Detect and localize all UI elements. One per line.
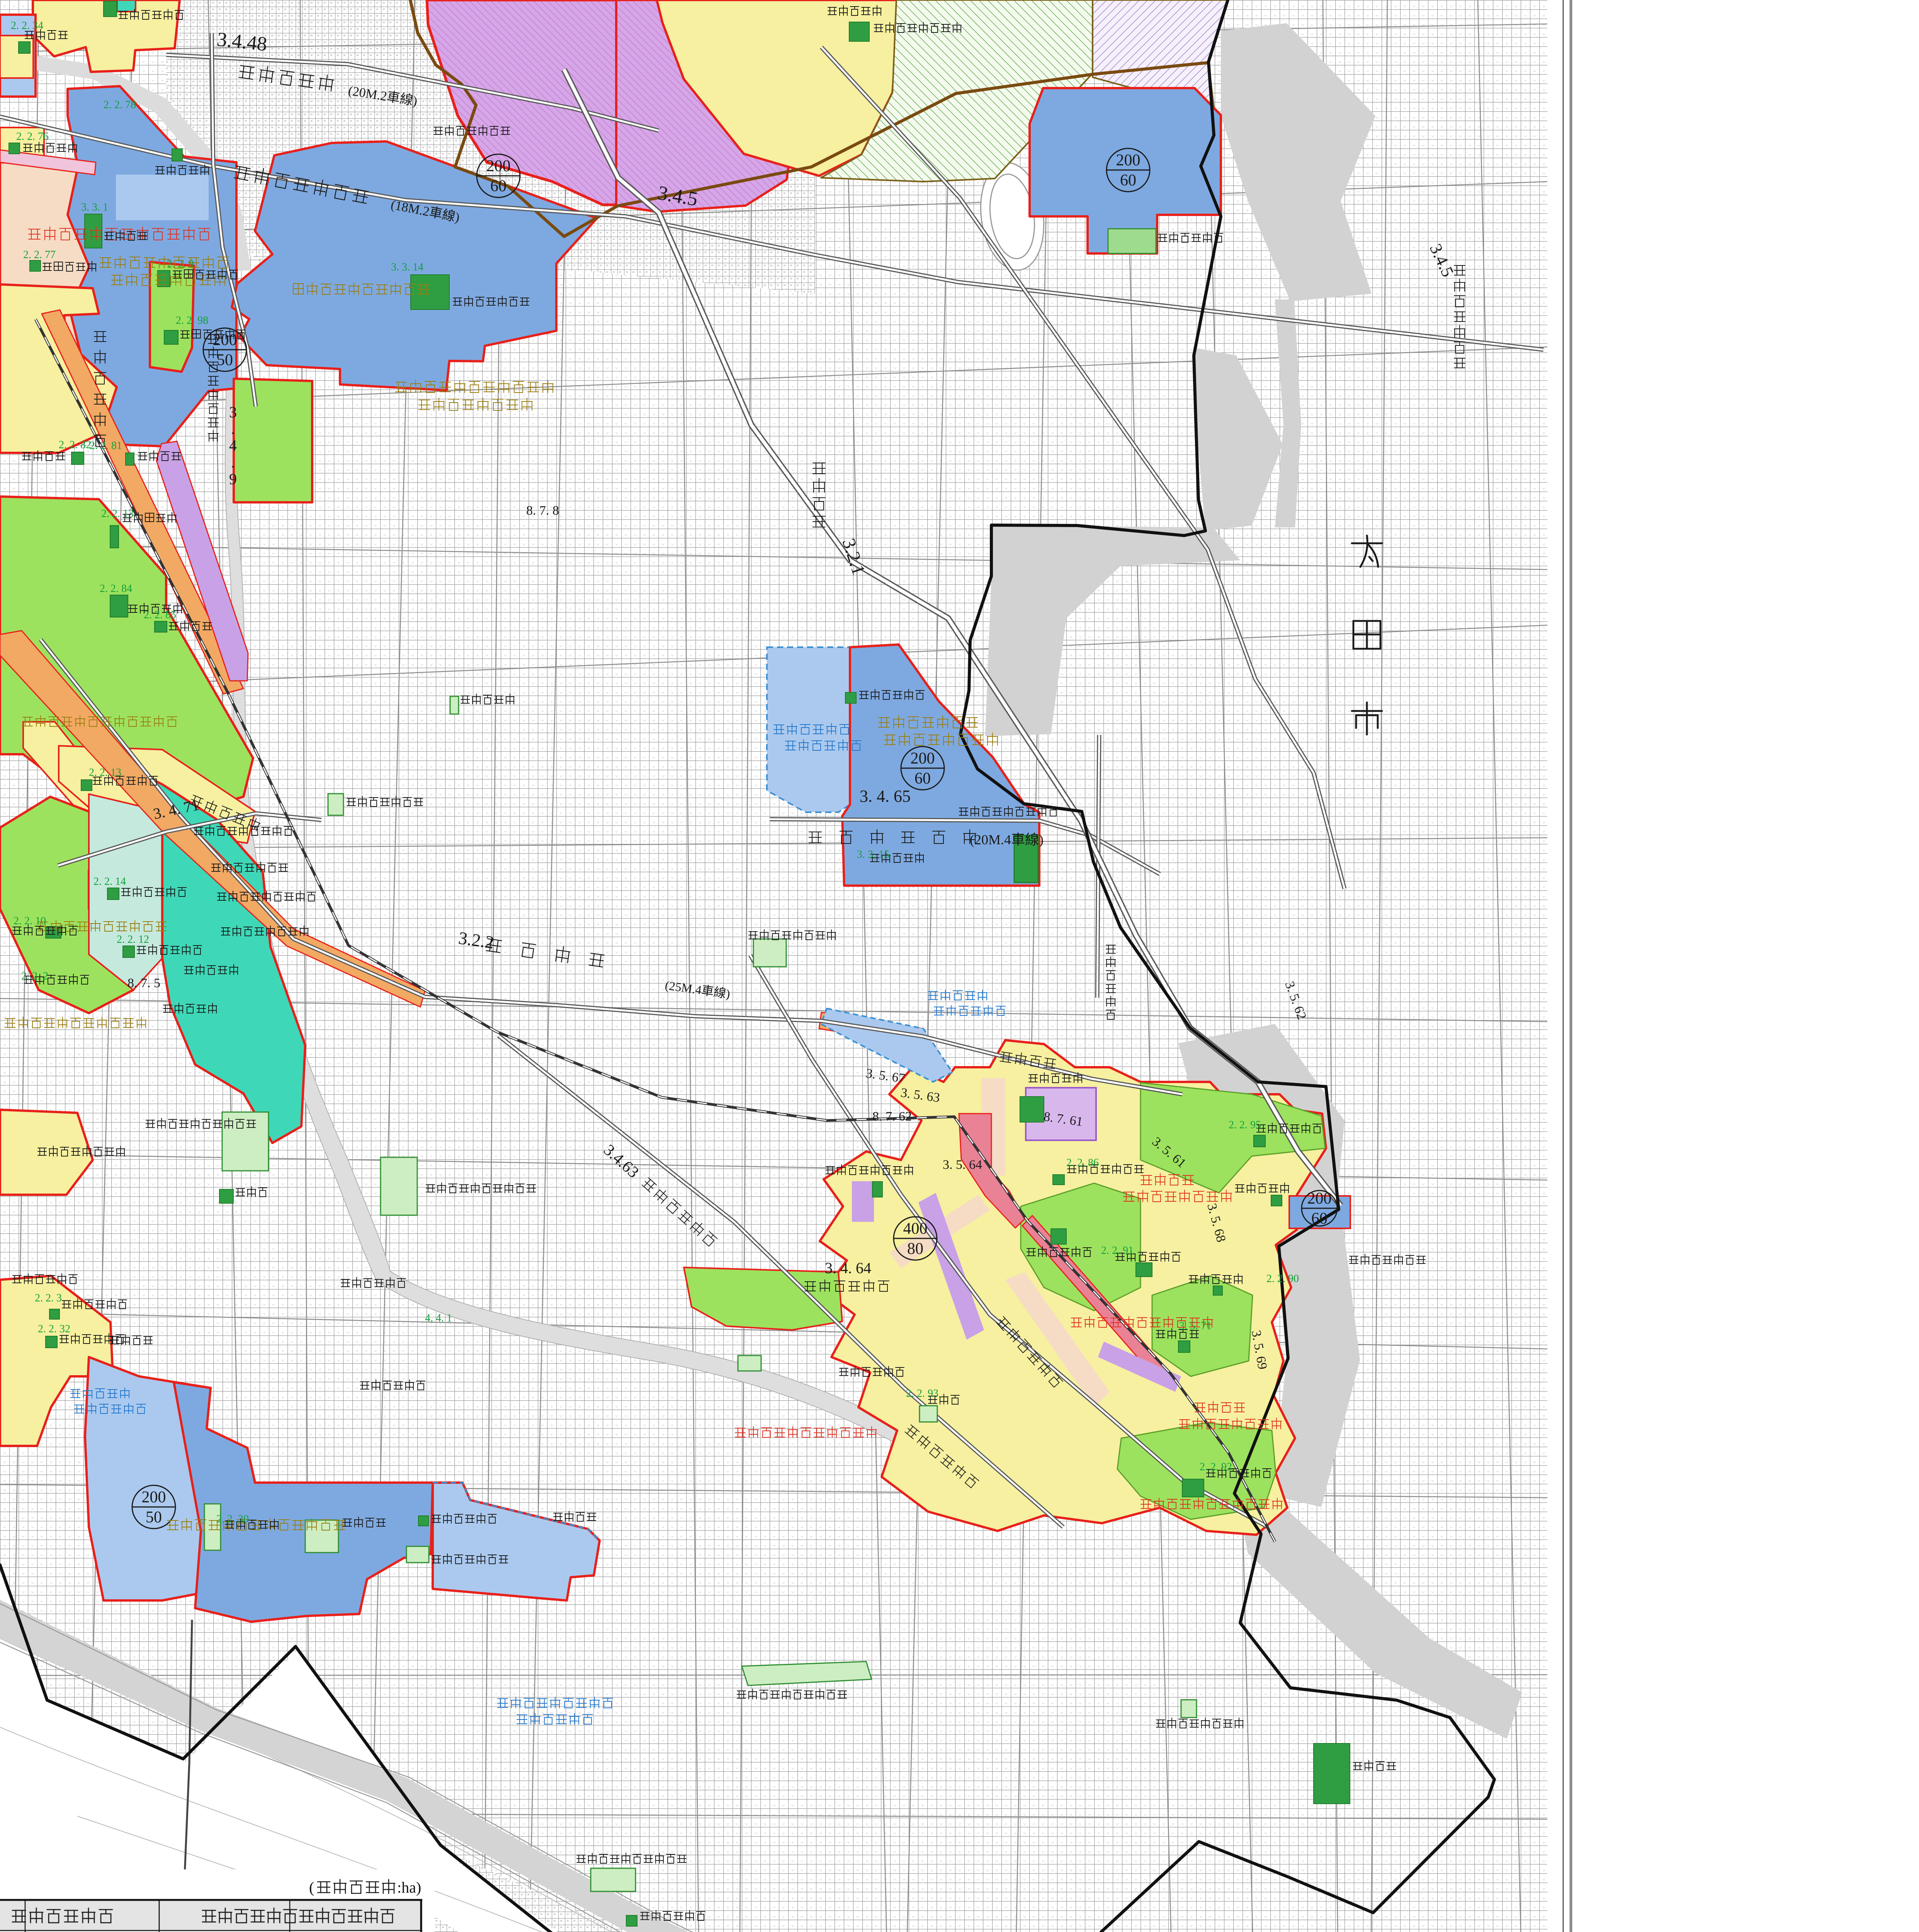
svg-text:2. 2. 2: 2. 2. 2: [21, 970, 48, 982]
svg-text:200: 200: [486, 157, 511, 175]
svg-text:8. 7. 5: 8. 7. 5: [127, 976, 160, 990]
svg-text:2. 2. 32: 2. 2. 32: [38, 1323, 70, 1335]
svg-text:200: 200: [142, 1488, 166, 1506]
svg-text::ha): :ha): [397, 1879, 421, 1896]
svg-text:2. 2. 92: 2. 2. 92: [1200, 1461, 1232, 1473]
svg-text:200: 200: [1116, 151, 1141, 169]
svg-text:8. 7. 62: 8. 7. 62: [872, 1109, 912, 1124]
svg-text:2. 2. 34: 2. 2. 34: [11, 20, 43, 32]
svg-text:2. 2. 98: 2. 2. 98: [176, 315, 208, 327]
svg-text:2. 2. 93: 2. 2. 93: [906, 1388, 938, 1400]
svg-text:200: 200: [1307, 1190, 1332, 1207]
svg-text:3. 3. 15: 3. 3. 15: [857, 849, 889, 861]
svg-text:60: 60: [914, 770, 931, 787]
svg-text:60: 60: [490, 177, 507, 195]
svg-text:2. 2. 13: 2. 2. 13: [101, 508, 134, 520]
svg-text:2. 2. 12: 2. 2. 12: [117, 934, 149, 946]
svg-text:2. 2. 86: 2. 2. 86: [1066, 1157, 1099, 1169]
svg-text:60: 60: [1311, 1210, 1327, 1228]
svg-text:2. 2. 14: 2. 2. 14: [93, 876, 126, 888]
svg-text:200: 200: [911, 750, 935, 767]
svg-text:3. 3. 14: 3. 3. 14: [391, 261, 423, 273]
svg-text:400: 400: [903, 1220, 928, 1238]
svg-text:80: 80: [907, 1240, 923, 1258]
svg-text:50: 50: [146, 1509, 162, 1526]
svg-text:2. 2. 13: 2. 2. 13: [89, 767, 121, 779]
svg-text:50: 50: [217, 351, 233, 369]
svg-text:(20M.4車線): (20M.4車線): [970, 832, 1044, 847]
svg-text:3. 3. 1: 3. 3. 1: [81, 201, 108, 213]
svg-text:2. 2. 85: 2. 2. 85: [144, 609, 176, 621]
svg-text:(: (: [309, 1879, 314, 1896]
svg-text:2. 2. 3: 2. 2. 3: [97, 0, 124, 3]
svg-text:2. 2. 90: 2. 2. 90: [1266, 1273, 1299, 1285]
svg-text:2. 2. 91: 2. 2. 91: [1101, 1245, 1134, 1257]
svg-text:2. 2. 78: 2. 2. 78: [104, 99, 136, 111]
svg-text:3. 5. 71: 3. 5. 71: [1179, 1320, 1212, 1332]
svg-text:2. 2. 82: 2. 2. 82: [59, 439, 91, 451]
svg-text:2. 2. 30: 2. 2. 30: [216, 1513, 249, 1525]
svg-text:2. 2. 10: 2. 2. 10: [14, 915, 46, 927]
svg-text:3. 5. 64: 3. 5. 64: [943, 1158, 982, 1172]
svg-text:4. 4. 1: 4. 4. 1: [425, 1312, 452, 1324]
svg-text:2. 2. 95: 2. 2. 95: [1229, 1119, 1261, 1131]
svg-text:2. 2. 81: 2. 2. 81: [90, 440, 122, 452]
svg-text:3. 4. 65: 3. 4. 65: [860, 787, 911, 806]
svg-text:2. 2. 9: 2. 2. 9: [167, 258, 194, 270]
svg-text:3. 4. 64: 3. 4. 64: [825, 1259, 871, 1277]
svg-text:2. 2. 77: 2. 2. 77: [23, 249, 56, 261]
svg-text:8. 7. 8: 8. 7. 8: [526, 503, 559, 518]
svg-text:60: 60: [1120, 172, 1136, 189]
svg-text:2. 2. 84: 2. 2. 84: [100, 583, 132, 595]
svg-text:2. 2. 3: 2. 2. 3: [35, 1292, 62, 1304]
svg-text:2. 2. 76: 2. 2. 76: [16, 131, 49, 143]
svg-text:3.4.9: 3.4.9: [229, 403, 237, 488]
